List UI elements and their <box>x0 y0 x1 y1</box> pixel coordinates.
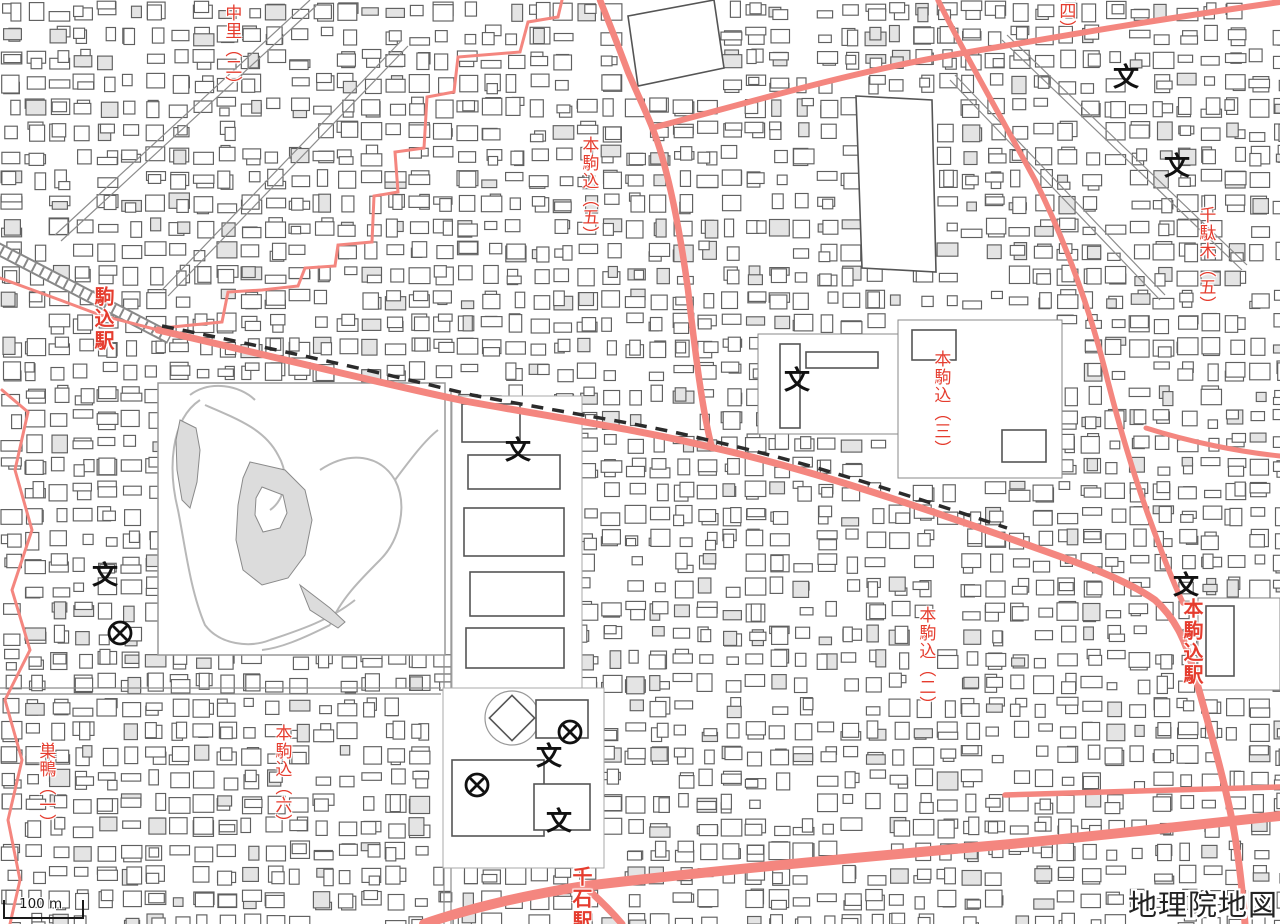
school-icon: 文 <box>1173 570 1200 601</box>
school-icon: 文 <box>784 365 811 396</box>
police-station-icon <box>559 721 581 743</box>
school-icon: 文 <box>1113 62 1140 93</box>
attribution-watermark[interactable]: 地理院地図 <box>1128 882 1278 924</box>
school-icon: 文 <box>536 741 563 772</box>
school-icon: 文 <box>546 806 573 837</box>
school-icon: 文 <box>505 435 532 466</box>
school-icon: 文 <box>1164 151 1191 182</box>
rikugien-garden <box>158 383 445 655</box>
police-station-icon <box>466 774 488 796</box>
scale-bar-label: 100 m <box>19 896 62 912</box>
gsi-map-canvas[interactable]: 文文文文文文文文 中里（二）駒込駅本駒込（五）（四）千駄木（五）本駒込（三）本駒… <box>0 0 1280 924</box>
school-icon: 文 <box>92 560 119 591</box>
map-render: 文文文文文文文文 <box>0 0 1280 924</box>
police-station-icon <box>109 622 131 644</box>
scale-bar: 100 m <box>3 900 84 919</box>
